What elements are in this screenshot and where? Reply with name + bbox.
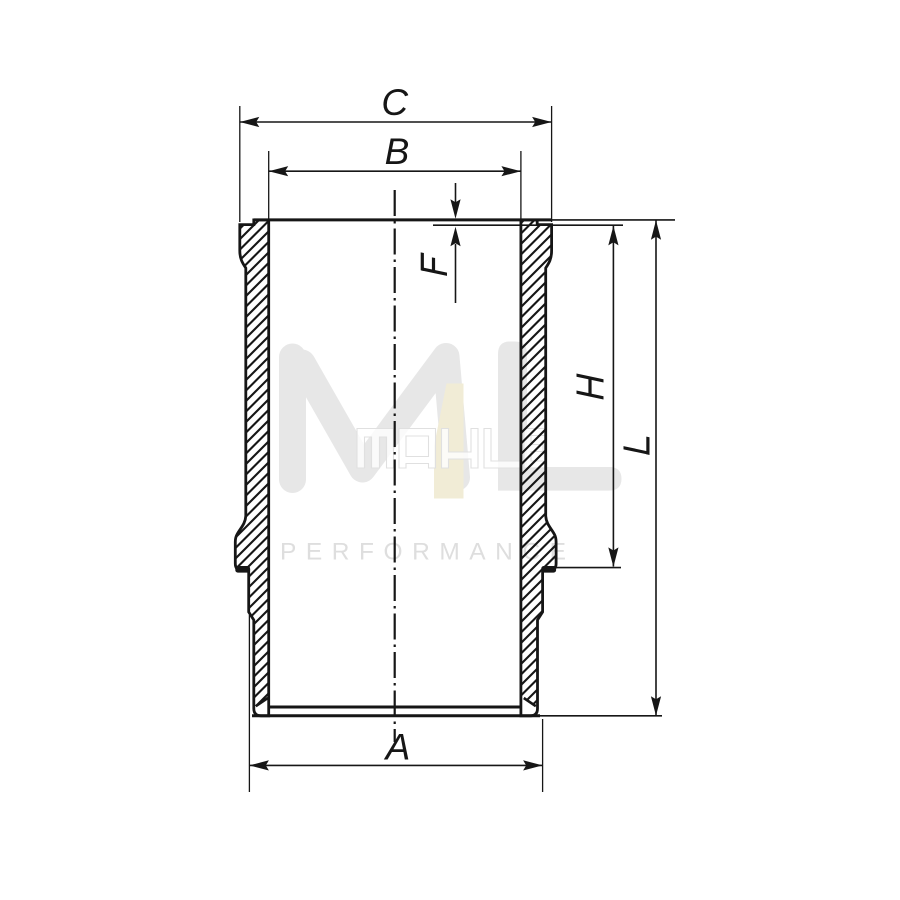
- svg-text:C: C: [381, 82, 408, 123]
- svg-text:A: A: [384, 727, 411, 768]
- svg-text:B: B: [385, 131, 410, 172]
